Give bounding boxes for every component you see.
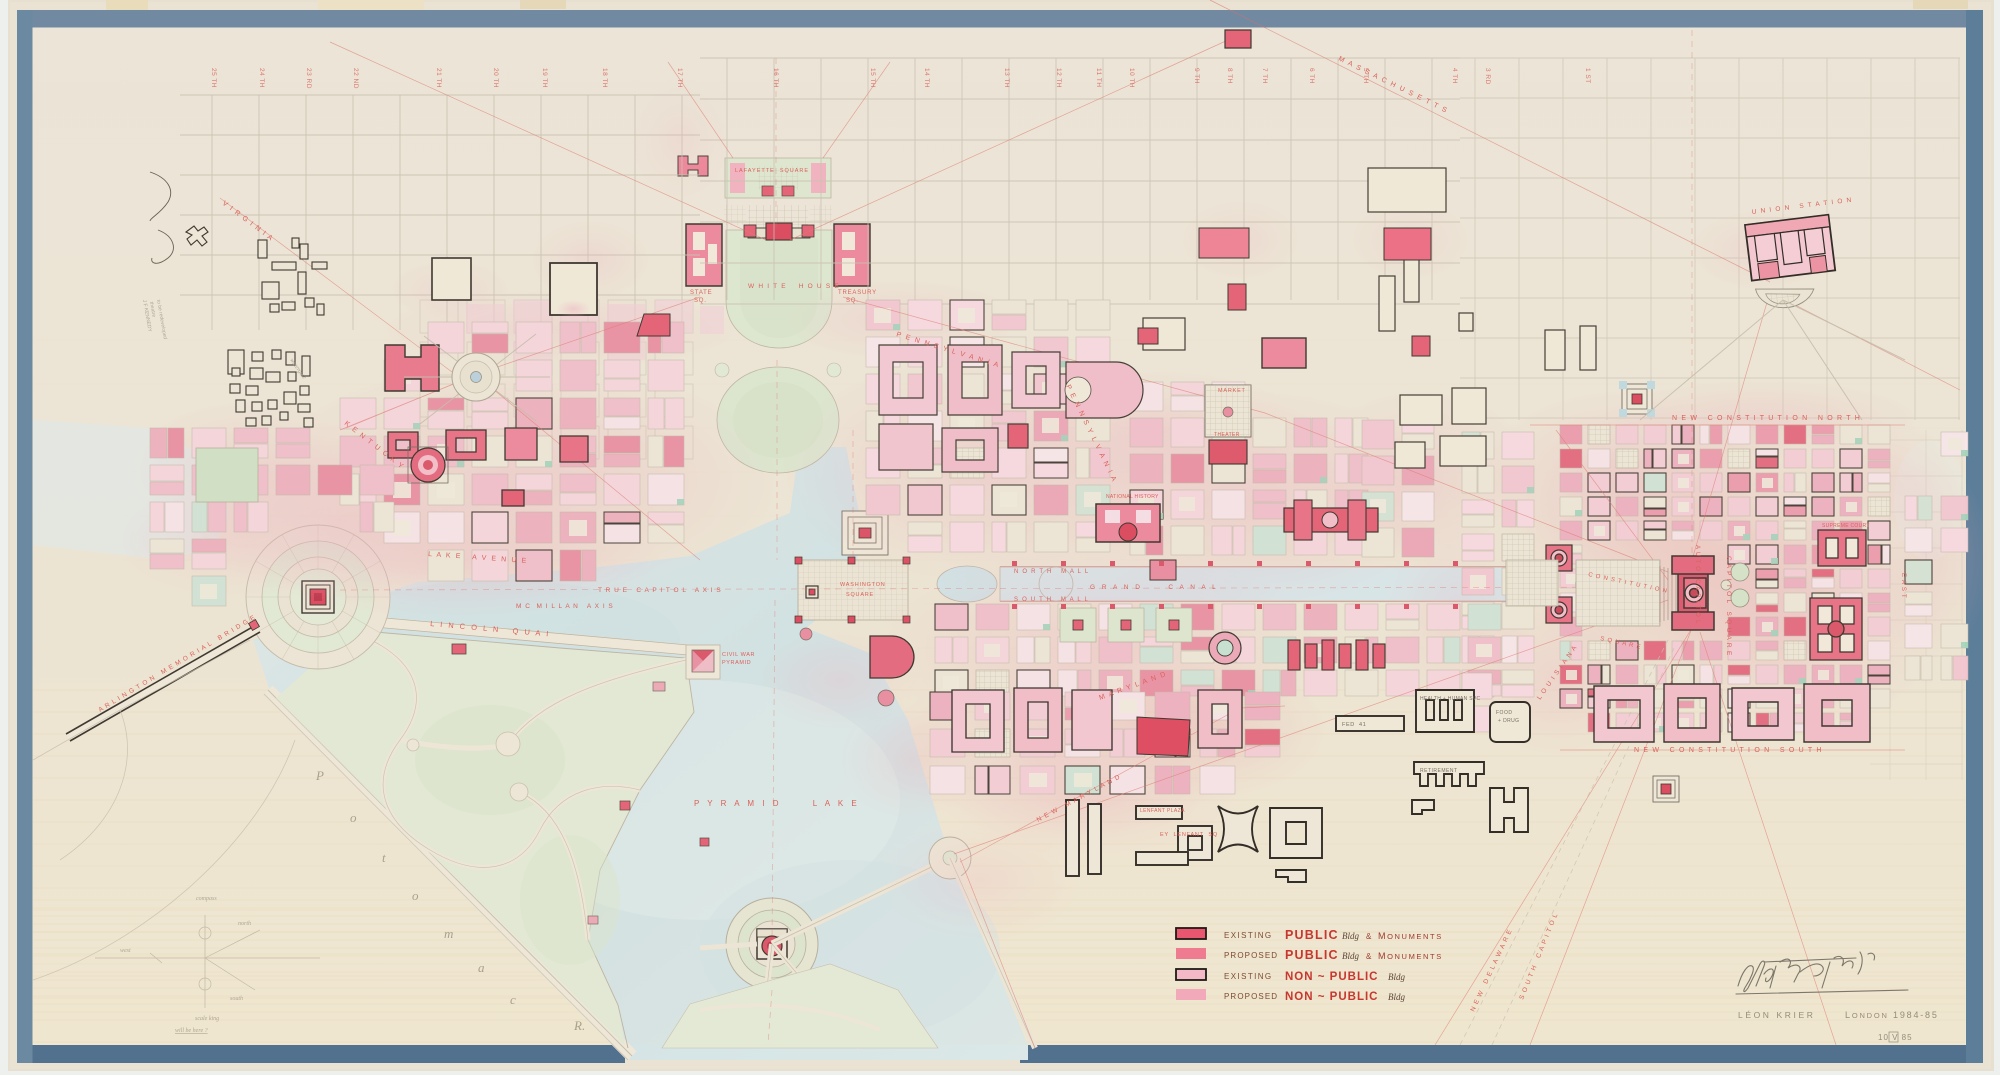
svg-text:LÉON KRIER: LÉON KRIER [1738,1010,1816,1020]
svg-text:Bldg: Bldg [1342,951,1359,961]
svg-text:NON ~ PUBLIC: NON ~ PUBLIC [1285,971,1378,983]
svg-text:NON ~ PUBLIC: NON ~ PUBLIC [1285,991,1378,1003]
svg-text:PUBLIC: PUBLIC [1285,928,1339,942]
svg-text:south: south [230,996,243,1002]
svg-text:&: & [1366,952,1372,961]
svg-text:MONUMENTS: MONUMENTS [1378,951,1443,961]
svg-text:PROPOSED: PROPOSED [1224,992,1278,1001]
svg-text:Bldg: Bldg [1388,972,1405,982]
svg-text:PUBLIC: PUBLIC [1285,948,1339,962]
svg-text:will be here ?: will be here ? [175,1028,208,1034]
svg-text:compass: compass [196,896,217,902]
svg-text:10 V 85: 10 V 85 [1878,1033,1913,1042]
svg-text:Bldg: Bldg [1342,931,1359,941]
svg-text:LONDON 1984-85: LONDON 1984-85 [1845,1010,1939,1020]
svg-text:&: & [1366,932,1372,941]
svg-text:EXISTING: EXISTING [1224,972,1273,981]
svg-text:Bldg: Bldg [1388,992,1405,1002]
svg-text:north: north [238,921,251,927]
svg-text:PROPOSED: PROPOSED [1224,951,1278,960]
svg-text:MONUMENTS: MONUMENTS [1378,931,1443,941]
svg-text:EXISTING: EXISTING [1224,931,1273,940]
svg-text:west: west [120,948,131,954]
svg-text:scale king: scale king [195,1016,219,1022]
